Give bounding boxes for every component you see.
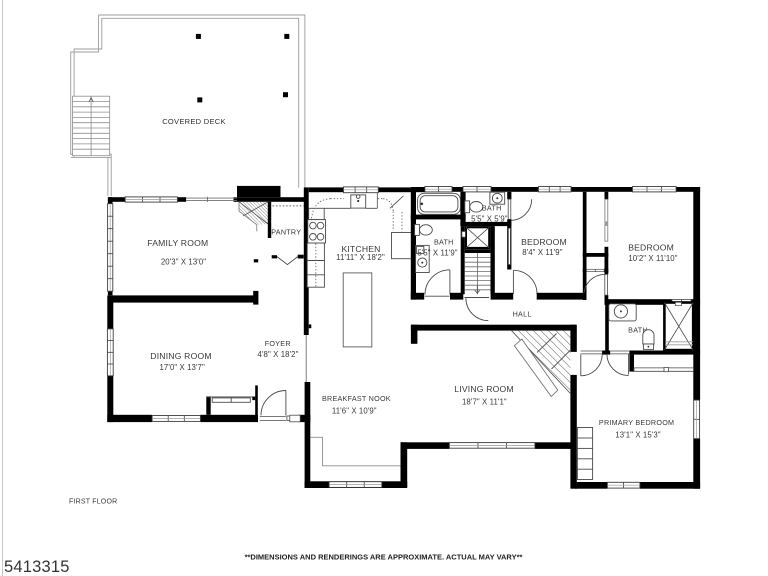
svg-text:**DIMENSIONS AND RENDERINGS AR: **DIMENSIONS AND RENDERINGS ARE APPROXIM… bbox=[245, 553, 523, 562]
svg-text:HALL: HALL bbox=[513, 310, 532, 319]
svg-text:LIVING ROOM: LIVING ROOM bbox=[454, 384, 514, 394]
svg-text:PANTRY: PANTRY bbox=[271, 228, 301, 237]
svg-text:11'11" X 18'2": 11'11" X 18'2" bbox=[336, 253, 385, 262]
svg-text:FOYER: FOYER bbox=[265, 339, 291, 348]
svg-text:4'8" X 18'2": 4'8" X 18'2" bbox=[258, 350, 299, 359]
svg-text:17'0" X 13'7": 17'0" X 13'7" bbox=[160, 363, 205, 372]
svg-text:8'4" X 11'9": 8'4" X 11'9" bbox=[522, 248, 562, 257]
svg-text:FIRST FLOOR: FIRST FLOOR bbox=[69, 499, 117, 506]
svg-text:BATH: BATH bbox=[482, 204, 502, 213]
svg-text:COVERED DECK: COVERED DECK bbox=[162, 117, 226, 126]
svg-text:DINING ROOM: DINING ROOM bbox=[150, 351, 211, 361]
svg-text:BREAKFAST NOOK: BREAKFAST NOOK bbox=[322, 394, 391, 403]
svg-text:FAMILY ROOM: FAMILY ROOM bbox=[147, 238, 208, 248]
svg-text:BEDROOM: BEDROOM bbox=[521, 237, 567, 247]
svg-text:5413315: 5413315 bbox=[4, 558, 70, 576]
svg-text:10'2" X 11'10": 10'2" X 11'10" bbox=[628, 254, 677, 263]
svg-text:BATH: BATH bbox=[434, 238, 454, 247]
svg-text:11'6" X 10'9": 11'6" X 10'9" bbox=[332, 406, 377, 415]
svg-text:PRIMARY BEDROOM: PRIMARY BEDROOM bbox=[599, 418, 674, 427]
svg-text:13'1" X 15'3": 13'1" X 15'3" bbox=[615, 430, 660, 439]
svg-text:5'5" X 11'9": 5'5" X 11'9" bbox=[417, 248, 457, 257]
svg-text:20'3" X 13'0": 20'3" X 13'0" bbox=[161, 257, 206, 266]
svg-text:BEDROOM: BEDROOM bbox=[628, 243, 674, 253]
svg-text:18'7" X 11'1": 18'7" X 11'1" bbox=[462, 398, 507, 407]
